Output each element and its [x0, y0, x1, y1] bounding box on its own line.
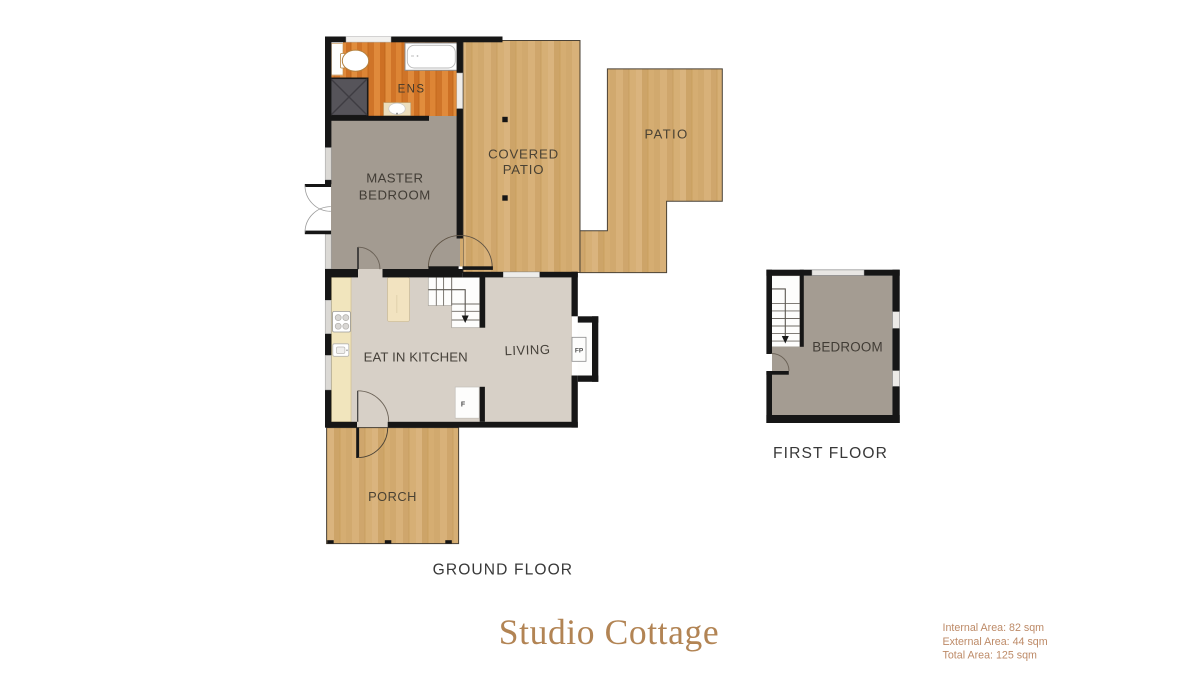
svg-text:PATIO: PATIO — [644, 127, 688, 142]
svg-text:Total Area: 125 sqm: Total Area: 125 sqm — [943, 650, 1038, 662]
svg-text:Studio Cottage: Studio Cottage — [499, 612, 719, 652]
svg-text:COVERED: COVERED — [488, 147, 559, 162]
svg-text:FIRST FLOOR: FIRST FLOOR — [773, 445, 888, 462]
svg-text:PATIO: PATIO — [503, 162, 545, 177]
svg-text:External Area: 44 sqm: External Area: 44 sqm — [943, 636, 1048, 648]
svg-text:BEDROOM: BEDROOM — [359, 188, 431, 203]
svg-text:ENS: ENS — [398, 84, 426, 96]
svg-text:FP: FP — [575, 348, 584, 355]
svg-text:EAT IN KITCHEN: EAT IN KITCHEN — [364, 350, 468, 365]
svg-text:MASTER: MASTER — [366, 171, 423, 186]
svg-text:LIVING: LIVING — [504, 342, 550, 359]
svg-text:F: F — [461, 402, 466, 409]
svg-text:GROUND FLOOR: GROUND FLOOR — [433, 562, 574, 579]
svg-text:BEDROOM: BEDROOM — [812, 340, 883, 355]
svg-text:Internal Area: 82 sqm: Internal Area: 82 sqm — [943, 622, 1045, 634]
svg-text:PORCH: PORCH — [368, 489, 417, 504]
